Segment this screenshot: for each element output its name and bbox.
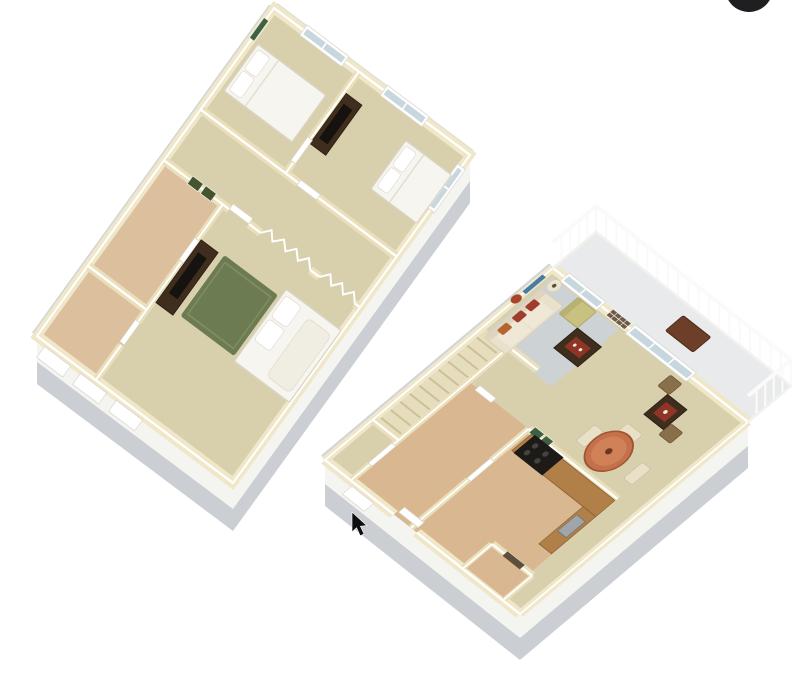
floor-plan-page: [0, 0, 800, 681]
corner-button[interactable]: [725, 0, 773, 12]
floor-plan-illustration: [0, 0, 800, 681]
